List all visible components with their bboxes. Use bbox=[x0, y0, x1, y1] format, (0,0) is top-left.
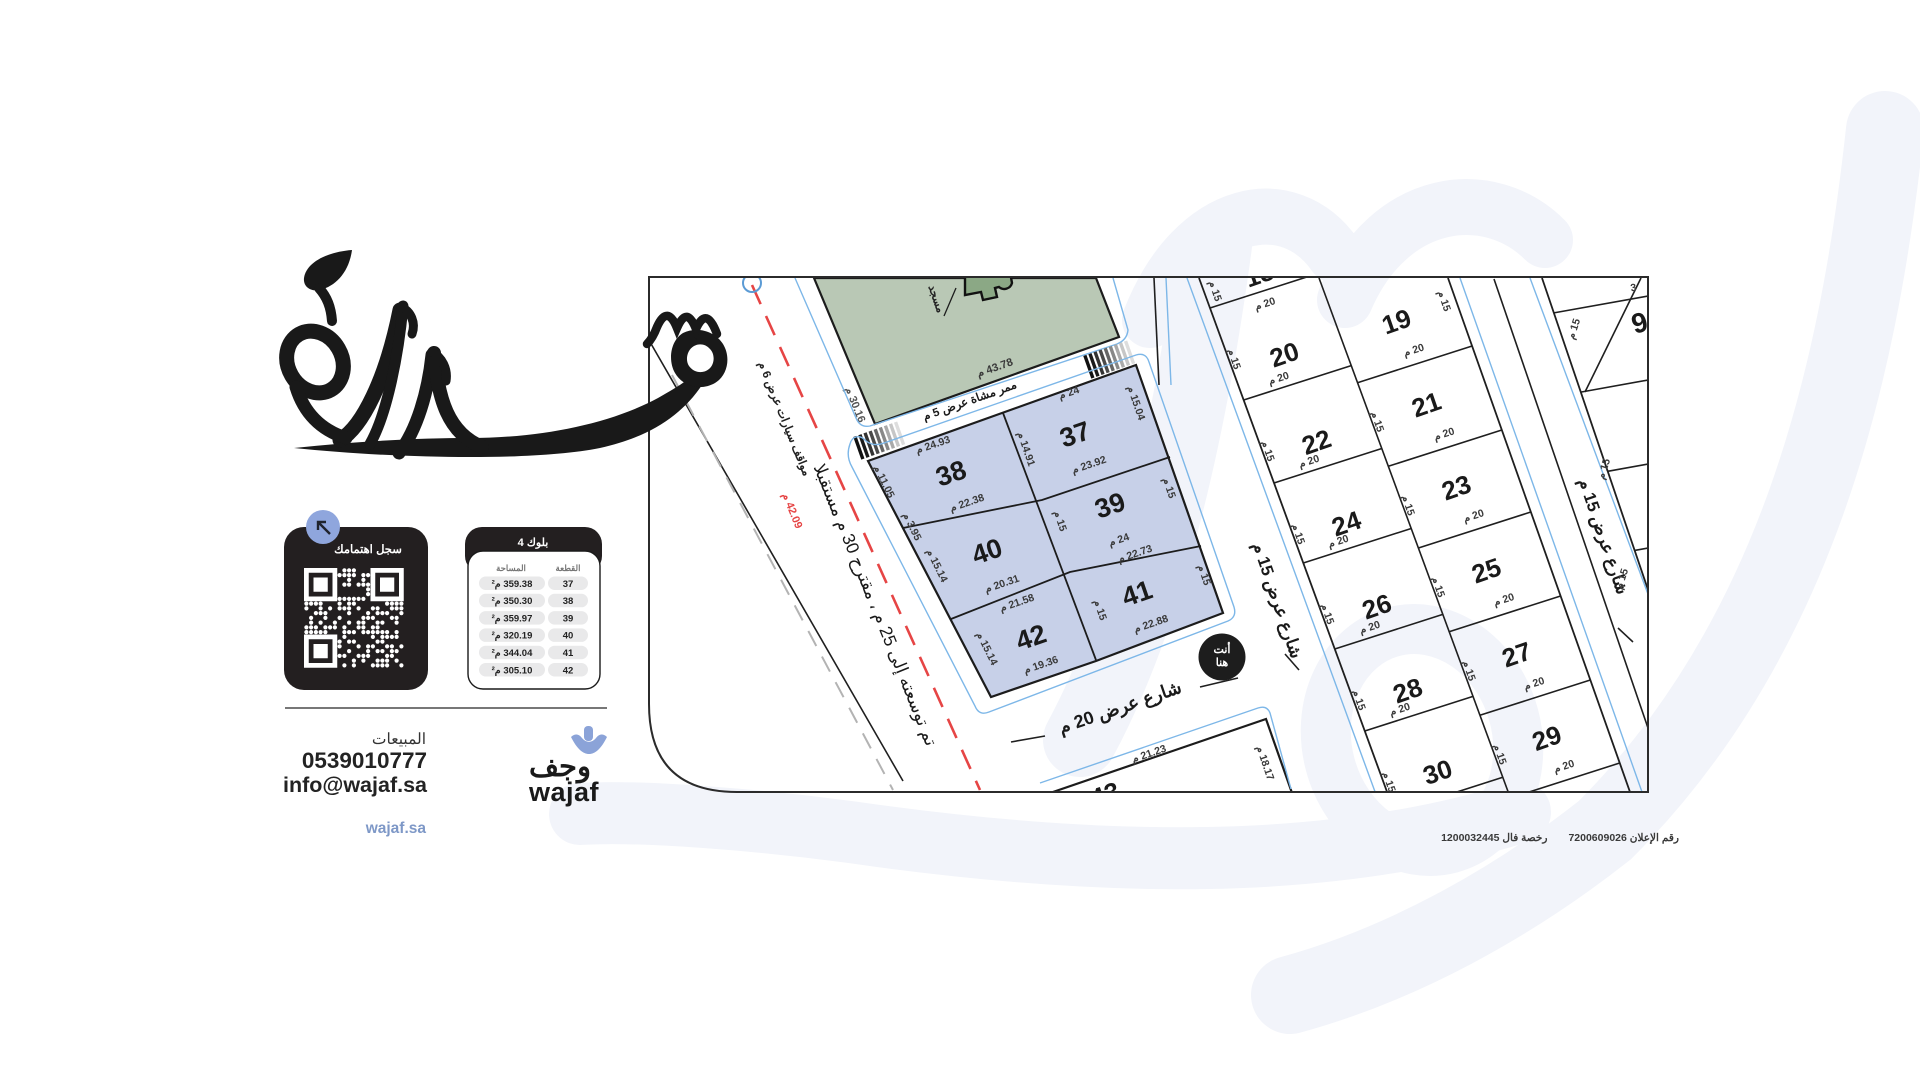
svg-text:15 م: 15 م bbox=[1318, 602, 1336, 626]
svg-text:20 م: 20 م bbox=[1462, 507, 1486, 525]
svg-text:15 م: 15 م bbox=[1565, 317, 1583, 341]
svg-text:info@wajaf.sa: info@wajaf.sa bbox=[283, 773, 428, 797]
svg-text:رقم الإعلان 7200609026 رخصة ف: رقم الإعلان 7200609026 رخصة فال 12000324… bbox=[1441, 832, 1679, 845]
svg-text:305.10 م²: 305.10 م² bbox=[492, 665, 533, 676]
svg-text:18.17 م: 18.17 م bbox=[1253, 744, 1276, 782]
svg-text:20 م: 20 م bbox=[1326, 533, 1350, 551]
svg-text:350.30 م²: 350.30 م² bbox=[492, 596, 533, 607]
svg-text:20 م: 20 م bbox=[1402, 341, 1426, 359]
svg-text:359.97 م²: 359.97 م² bbox=[492, 613, 533, 624]
svg-text:20: 20 bbox=[1266, 336, 1303, 374]
svg-text:بلوك 4: بلوك 4 bbox=[518, 537, 549, 549]
svg-text:37: 37 bbox=[563, 579, 574, 590]
svg-text:38: 38 bbox=[563, 596, 574, 607]
svg-text:أنت: أنت bbox=[1214, 642, 1231, 656]
svg-text:21: 21 bbox=[1408, 386, 1445, 424]
svg-text:20 م: 20 م bbox=[1253, 295, 1277, 313]
svg-text:20 م: 20 م bbox=[1432, 425, 1456, 443]
svg-text:30: 30 bbox=[1419, 753, 1456, 791]
svg-text:15 م: 15 م bbox=[1380, 770, 1398, 794]
svg-text:43: 43 bbox=[1087, 776, 1124, 814]
svg-text:15 م: 15 م bbox=[1399, 493, 1417, 517]
svg-text:هنا: هنا bbox=[1216, 657, 1229, 669]
svg-text:3: 3 bbox=[1630, 282, 1638, 295]
svg-text:41: 41 bbox=[563, 648, 574, 659]
svg-text:40: 40 bbox=[563, 631, 574, 642]
svg-text:القطعة: القطعة bbox=[556, 563, 581, 573]
svg-text:20 م: 20 م bbox=[1388, 701, 1412, 719]
svg-text:20 م: 20 م bbox=[1552, 758, 1576, 776]
svg-text:wajaf.sa: wajaf.sa bbox=[365, 820, 427, 837]
svg-text:25: 25 bbox=[1468, 552, 1505, 590]
svg-text:39: 39 bbox=[563, 613, 574, 624]
svg-text:wajaf: wajaf bbox=[528, 777, 600, 807]
svg-text:15 م: 15 م bbox=[1435, 289, 1453, 313]
svg-text:شارع عرض 15 م: شارع عرض 15 م bbox=[1247, 540, 1305, 661]
svg-text:359.38 م²: 359.38 م² bbox=[492, 579, 533, 590]
svg-text:320.19 م²: 320.19 م² bbox=[492, 631, 533, 642]
svg-text:20 م: 20 م bbox=[1267, 370, 1291, 388]
svg-text:20 م: 20 م bbox=[1297, 453, 1321, 471]
svg-text:15 م: 15 م bbox=[1429, 575, 1447, 599]
svg-text:0539010777: 0539010777 bbox=[302, 748, 427, 773]
svg-text:المبيعات: المبيعات bbox=[372, 731, 426, 748]
svg-text:15 م: 15 م bbox=[1368, 410, 1386, 434]
svg-text:سجل اهتمامك: سجل اهتمامك bbox=[334, 543, 402, 556]
svg-text:مواقف سيارات عرض 6 م: مواقف سيارات عرض 6 م bbox=[754, 360, 813, 479]
svg-text:42: 42 bbox=[563, 665, 574, 676]
svg-text:23: 23 bbox=[1438, 469, 1475, 507]
svg-text:344.04 م²: 344.04 م² bbox=[492, 648, 533, 659]
svg-text:20 م: 20 م bbox=[1522, 675, 1546, 693]
svg-text:المساحة: المساحة bbox=[496, 563, 526, 573]
svg-text:15 م: 15 م bbox=[1289, 522, 1307, 546]
svg-text:42.09 م: 42.09 م bbox=[779, 491, 804, 530]
svg-text:15 م: 15 م bbox=[1258, 439, 1276, 463]
svg-text:20 م: 20 م bbox=[1492, 591, 1516, 609]
svg-text:19: 19 bbox=[1378, 303, 1415, 341]
